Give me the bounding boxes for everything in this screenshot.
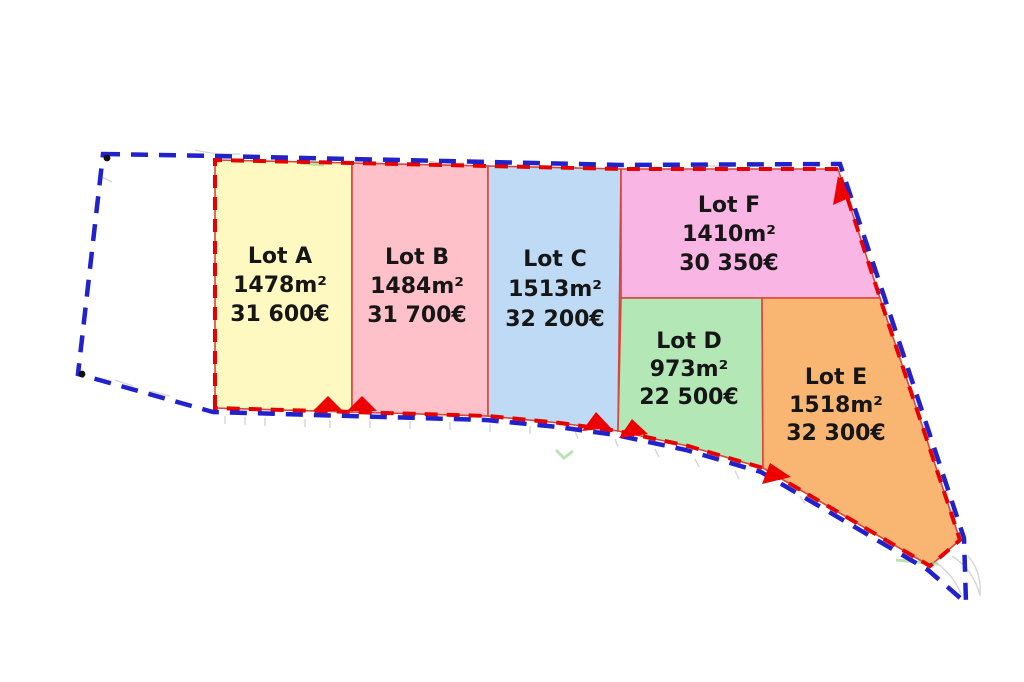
lot-f-area: 1410m² xyxy=(682,222,776,247)
lot-a-name: Lot A xyxy=(248,244,312,269)
boundary-corner-dot xyxy=(104,155,111,162)
lot-e-name: Lot E xyxy=(805,365,867,390)
lot-a-price: 31 600€ xyxy=(230,302,330,327)
lot-b-area: 1484m² xyxy=(370,274,464,299)
lot-d-region xyxy=(618,298,763,468)
boundary-corner-dot xyxy=(79,371,86,378)
unlabeled-parcel-region xyxy=(82,158,215,408)
lot-c-price: 32 200€ xyxy=(505,307,605,332)
site-plan-canvas: Lot A 1478m² 31 600€ Lot B 1484m² 31 700… xyxy=(0,0,1024,682)
lot-b-name: Lot B xyxy=(385,245,449,270)
lot-a-area: 1478m² xyxy=(233,273,327,298)
lot-e-price: 32 300€ xyxy=(786,421,886,446)
lot-c-area: 1513m² xyxy=(508,277,602,302)
lot-c-name: Lot C xyxy=(523,247,586,272)
lot-f-name: Lot F xyxy=(698,193,760,218)
lot-f-price: 30 350€ xyxy=(679,251,779,276)
lot-d-area: 973m² xyxy=(650,357,728,382)
lot-d-name: Lot D xyxy=(656,329,722,354)
lot-d-price: 22 500€ xyxy=(639,385,739,410)
subdivision-plan-drawing: Lot A 1478m² 31 600€ Lot B 1484m² 31 700… xyxy=(0,0,1024,682)
lot-b-price: 31 700€ xyxy=(367,303,467,328)
lot-e-area: 1518m² xyxy=(789,393,883,418)
